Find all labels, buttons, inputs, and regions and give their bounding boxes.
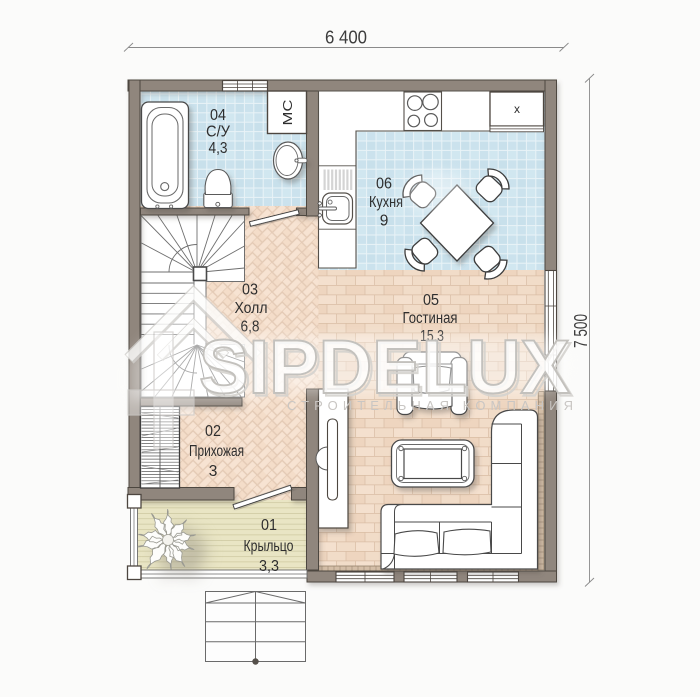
svg-text:Прихожая: Прихожая bbox=[189, 443, 244, 460]
svg-text:05: 05 bbox=[423, 292, 439, 309]
svg-text:02: 02 bbox=[205, 423, 221, 440]
svg-text:Кухня: Кухня bbox=[369, 194, 403, 211]
svg-text:06: 06 bbox=[376, 176, 392, 193]
svg-text:03: 03 bbox=[242, 282, 258, 299]
svg-text:9: 9 bbox=[380, 213, 389, 230]
svg-text:МС: МС bbox=[281, 100, 295, 126]
svg-text:3,3: 3,3 bbox=[259, 558, 279, 575]
svg-text:С/У: С/У bbox=[206, 124, 230, 141]
svg-text:х: х bbox=[514, 102, 520, 116]
svg-text:01: 01 bbox=[261, 517, 277, 534]
svg-text:Крыльцо: Крыльцо bbox=[244, 538, 294, 555]
svg-text:04: 04 bbox=[210, 107, 226, 124]
svg-text:Холл: Холл bbox=[235, 300, 268, 317]
svg-text:4,3: 4,3 bbox=[209, 140, 228, 157]
svg-text:3: 3 bbox=[209, 463, 218, 480]
svg-text:7 500: 7 500 bbox=[571, 314, 591, 348]
svg-text:6 400: 6 400 bbox=[325, 28, 367, 48]
